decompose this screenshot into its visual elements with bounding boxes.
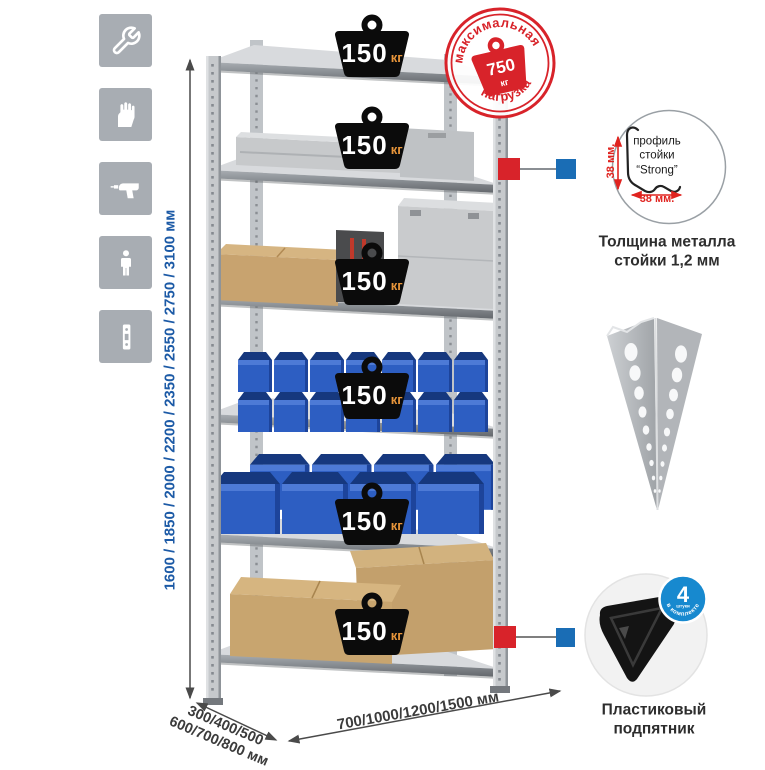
shelf-load-badge: 150кг bbox=[320, 356, 424, 422]
connector-top bbox=[498, 158, 576, 180]
foot-caption: Пластиковый подпятник bbox=[564, 701, 744, 740]
profile-label: профиль стойки “Strong” bbox=[615, 134, 699, 177]
corner-post-image bbox=[597, 308, 752, 528]
load-unit: кг bbox=[391, 628, 403, 643]
sidebar-icon-drill bbox=[99, 162, 152, 215]
load-value: 150 bbox=[341, 506, 387, 536]
load-value: 150 bbox=[341, 616, 387, 646]
drill-icon bbox=[109, 172, 143, 206]
shelf-load-badge: 150кг bbox=[320, 242, 424, 308]
load-value: 150 bbox=[341, 380, 387, 410]
shelf-load-badge: 150кг bbox=[320, 592, 424, 658]
badge-sub: штуки bbox=[676, 604, 690, 609]
sidebar-icon-person bbox=[99, 236, 152, 289]
person-icon bbox=[111, 248, 141, 278]
profile-dim-v-label: 38 мм. bbox=[605, 144, 617, 179]
profile-caption: Толщина металла стойки 1,2 мм bbox=[577, 233, 757, 272]
height-dimension-label: 1600 / 1850 / 2000 / 2200 / 2350 / 2550 … bbox=[162, 210, 179, 591]
load-unit: кг bbox=[391, 518, 403, 533]
sidebar-icon-profile-strip bbox=[99, 310, 152, 363]
load-unit: кг bbox=[391, 142, 403, 157]
shelf-load-badge: 150кг bbox=[320, 482, 424, 548]
load-unit: кг bbox=[391, 50, 403, 65]
load-unit: кг bbox=[391, 278, 403, 293]
load-value: 150 bbox=[341, 266, 387, 296]
load-value: 150 bbox=[341, 38, 387, 68]
wrench-icon bbox=[110, 25, 142, 57]
connector-bottom bbox=[494, 626, 575, 648]
sidebar-icon-wrench bbox=[99, 14, 152, 67]
sidebar-icon-gloves bbox=[99, 88, 152, 141]
profile-dim-h-label: 38 мм. bbox=[640, 193, 675, 205]
load-unit: кг bbox=[391, 392, 403, 407]
load-value: 150 bbox=[341, 130, 387, 160]
profile-strip-icon bbox=[111, 322, 141, 352]
shelf-load-badge: 150кг bbox=[320, 106, 424, 172]
gloves-icon bbox=[110, 99, 142, 131]
included-count-badge: 4 штуки в комплекте bbox=[658, 574, 708, 624]
shelf-load-badge: 150кг bbox=[320, 14, 424, 80]
product-infographic: { "sidebar": { "icons": ["wrench", "work… bbox=[0, 0, 765, 765]
